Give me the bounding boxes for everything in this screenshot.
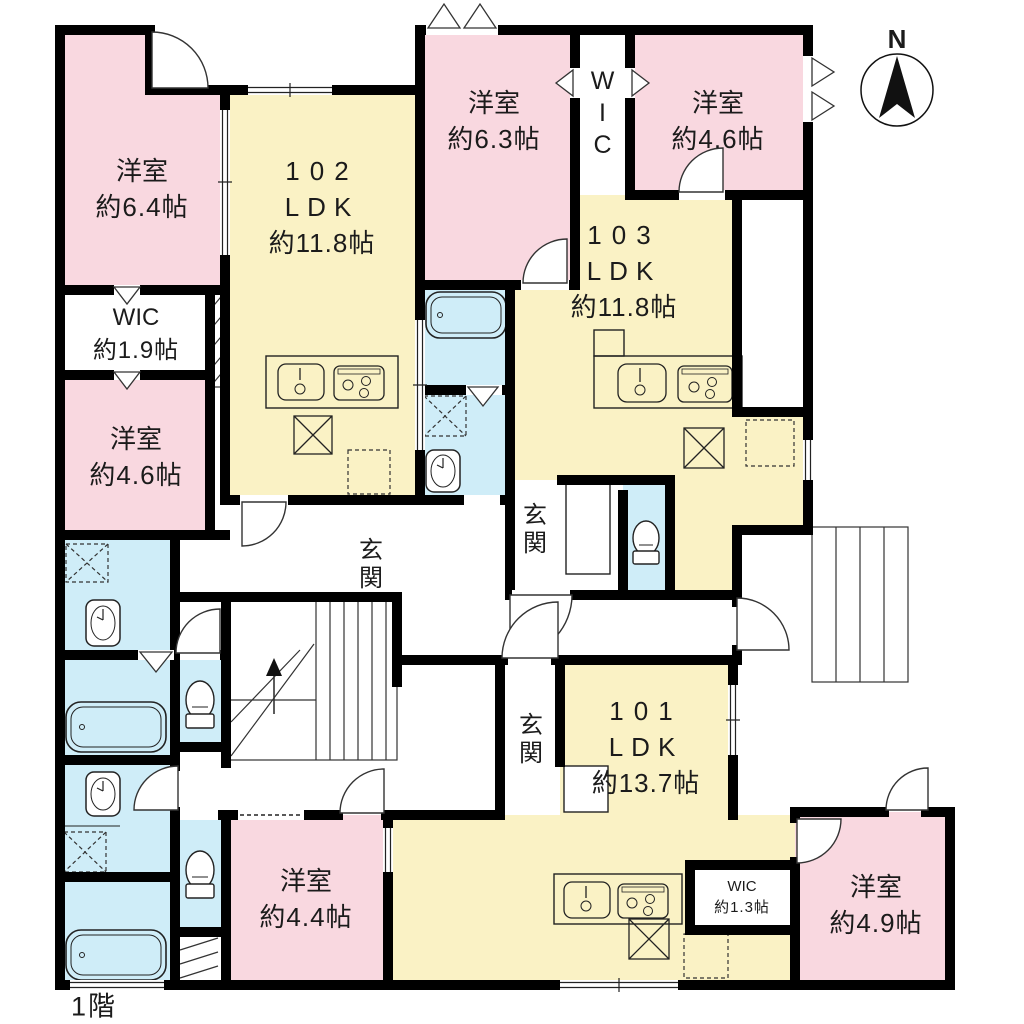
toilet-icon	[633, 521, 659, 564]
unit-label-101: 101 LDK 約13.7帖	[592, 694, 701, 802]
unit-type: LDK	[269, 190, 376, 226]
unit-size: 約13.7帖	[592, 766, 701, 802]
entrance-label-101: 玄関	[511, 712, 546, 768]
room-name: WIC	[714, 876, 770, 897]
floor-label: 1階	[71, 988, 117, 1024]
room-size: 約1.3帖	[714, 897, 770, 918]
room-label-wic-1-3: WIC 約1.3帖	[714, 876, 770, 918]
entrance-label-103: 玄関	[515, 502, 550, 558]
room-size: 約4.4帖	[259, 900, 352, 936]
external-stairs-icon	[812, 527, 908, 682]
unit-size: 約11.8帖	[571, 290, 678, 326]
room-label-wic-north: WIC	[588, 67, 617, 163]
compass-north-label: N	[888, 22, 907, 58]
compass-icon	[861, 54, 933, 126]
hatched-closet-101	[178, 935, 222, 981]
washbasin-icon	[86, 600, 120, 646]
room-label-bedroom-6-3: 洋室 約6.3帖	[447, 86, 540, 158]
room-label-bedroom-4-6-left: 洋室 約4.6帖	[89, 422, 182, 494]
unit-type: LDK	[571, 254, 678, 290]
room-size: 約4.6帖	[671, 122, 764, 158]
toilet-icon	[186, 851, 214, 898]
room-ldk-103-kitchen-east	[737, 412, 808, 530]
unit-label-103: 103 LDK 約11.8帖	[571, 218, 678, 326]
room-name: 洋室	[671, 86, 764, 122]
entrance-label-102: 玄関	[351, 537, 386, 593]
washbasin-icon	[426, 450, 460, 492]
room-size: 約4.6帖	[89, 458, 182, 494]
room-ldk-103-kitchen-south	[670, 480, 737, 595]
room-label-bedroom-4-4: 洋室 約4.4帖	[259, 864, 352, 936]
room-label-wic-1-9: WIC 約1.9帖	[93, 301, 179, 367]
room-size: 約4.9帖	[829, 906, 922, 942]
room-name: 洋室	[89, 422, 182, 458]
room-size: 約6.4帖	[95, 190, 188, 226]
room-label-bedroom-4-9: 洋室 約4.9帖	[829, 870, 922, 942]
room-size: 約1.9帖	[93, 334, 179, 367]
room-name: 洋室	[95, 154, 188, 190]
room-name: 洋室	[829, 870, 922, 906]
staircase-icon	[228, 600, 397, 760]
unit-number: 101	[592, 694, 701, 730]
room-name: 洋室	[447, 86, 540, 122]
unit-number: 103	[571, 218, 678, 254]
unit-type: LDK	[592, 730, 701, 766]
room-label-bedroom-6-4: 洋室 約6.4帖	[95, 154, 188, 226]
room-label-bedroom-4-6-right: 洋室 約4.6帖	[671, 86, 764, 158]
room-name: 洋室	[259, 864, 352, 900]
unit-size: 約11.8帖	[269, 226, 376, 262]
floor-plan: 洋室 約6.4帖 102 LDK 約11.8帖 洋室 約6.3帖 WIC 洋室 …	[0, 0, 1024, 1024]
unit-number: 102	[269, 154, 376, 190]
room-size: 約6.3帖	[447, 122, 540, 158]
unit-label-102: 102 LDK 約11.8帖	[269, 154, 376, 262]
shoe-cabinet	[566, 482, 610, 574]
room-name: WIC	[93, 301, 179, 334]
room-ldk-102	[225, 90, 420, 500]
toilet-icon	[186, 681, 214, 728]
